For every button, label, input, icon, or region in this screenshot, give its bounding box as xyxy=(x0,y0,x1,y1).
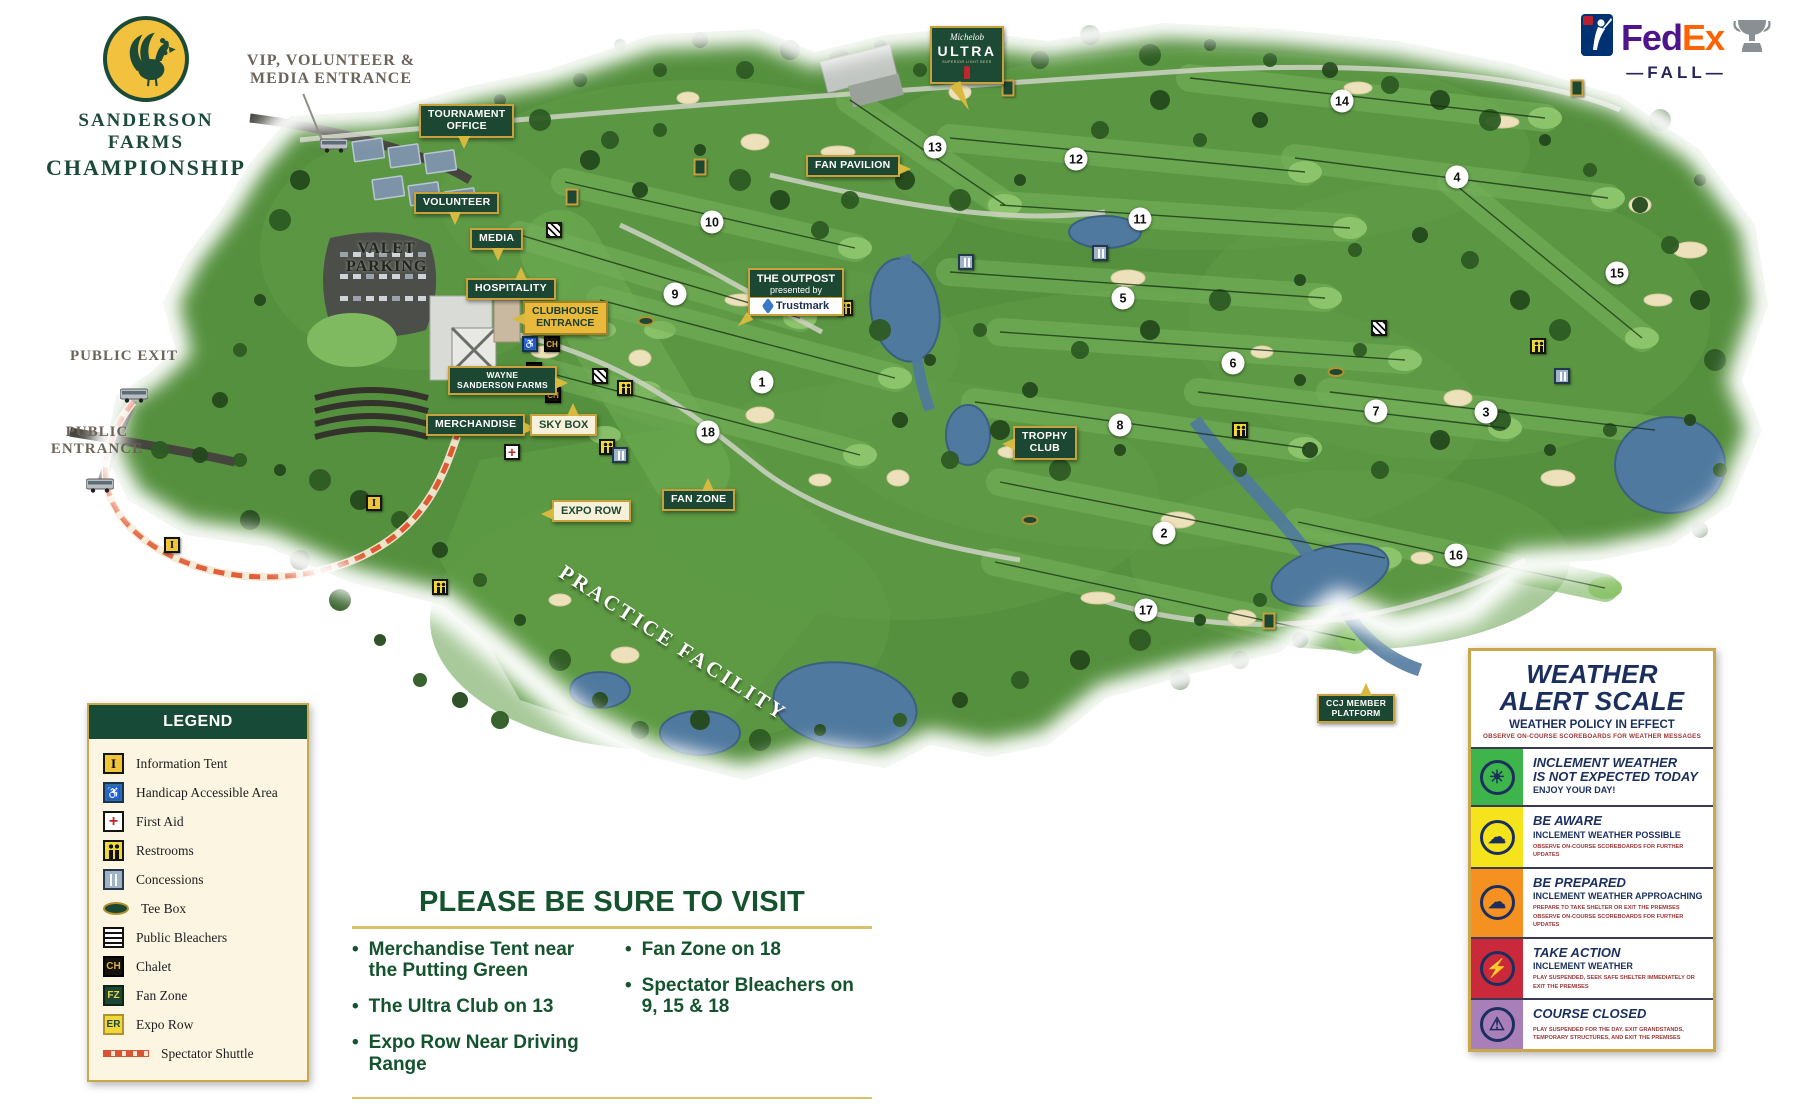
concessions-icon xyxy=(1554,368,1570,384)
legend-title: LEGEND xyxy=(89,705,307,739)
legend-label: Expo Row xyxy=(136,1017,193,1033)
fall-wordmark: —FALL— xyxy=(1626,63,1727,83)
legend-label: First Aid xyxy=(136,814,184,830)
hole-number-marker: 2 xyxy=(1153,522,1176,545)
event-title-line2: CHAMPIONSHIP xyxy=(46,155,246,181)
legend-label: Fan Zone xyxy=(136,988,187,1004)
legend-label: Concessions xyxy=(136,872,204,888)
map-location-label: WAYNE SANDERSON FARMS xyxy=(448,366,557,395)
bleachers-icon xyxy=(103,927,124,948)
restrooms-icon xyxy=(432,579,448,595)
restrooms-icon xyxy=(617,380,633,396)
map-location-label: TROPHY CLUB xyxy=(1013,426,1077,460)
teeoval-icon xyxy=(638,316,655,326)
handicap-icon: ♿ xyxy=(522,336,538,352)
visit-title: PLEASE BE SURE TO VISIT xyxy=(352,886,872,919)
weather-alert-panel: WEATHER ALERT SCALE WEATHER POLICY IN EF… xyxy=(1468,648,1716,1052)
public-exit-label: PUBLIC EXIT xyxy=(64,348,184,365)
chalet-icon: CH xyxy=(103,956,124,977)
map-location-label: FAN ZONE xyxy=(662,489,735,511)
restrooms-icon xyxy=(103,840,124,861)
storm-cloud-icon: ☁ xyxy=(1480,885,1515,920)
weather-level-subheading: INCLEMENT WEATHER APPROACHING xyxy=(1533,891,1705,901)
visit-item: •Expo Row Near Driving Range xyxy=(352,1032,599,1075)
hole-number-marker: 18 xyxy=(697,421,720,444)
weather-level-heading: TAKE ACTION xyxy=(1533,946,1705,960)
public-entrance-label: PUBLIC ENTRANCE xyxy=(42,424,152,457)
bullet-icon: • xyxy=(352,1032,359,1075)
teesign-icon xyxy=(694,159,707,176)
hole-number-marker: 4 xyxy=(1446,166,1469,189)
weather-level-color: ⚡ xyxy=(1471,939,1523,998)
shuttle-bus-icon xyxy=(320,138,348,158)
weather-level-row: ☀ INCLEMENT WEATHER IS NOT EXPECTED TODA… xyxy=(1471,747,1713,805)
legend-label: Spectator Shuttle xyxy=(161,1046,254,1062)
hole-number-marker: 5 xyxy=(1112,287,1135,310)
legend-row: CH Chalet xyxy=(103,952,297,981)
weather-level-fineprint: PLAY SUSPENDED FOR THE DAY. EXIT GRANDST… xyxy=(1533,1026,1705,1043)
visit-item: •Fan Zone on 18 xyxy=(625,939,872,960)
visit-list-right: •Fan Zone on 18 •Spectator Bleachers on … xyxy=(625,939,872,1090)
weather-level-row: ⚠ COURSE CLOSED PLAY SUSPENDED FOR THE D… xyxy=(1471,998,1713,1049)
weather-note: OBSERVE ON-COURSE SCOREBOARDS FOR WEATHE… xyxy=(1475,733,1709,740)
map-location-label: CLUBHOUSE ENTRANCE xyxy=(523,301,608,335)
weather-level-fineprint: PLAY SUSPENDED, SEEK SAFE SHELTER IMMEDI… xyxy=(1533,974,1705,991)
hole-number-marker: 7 xyxy=(1365,400,1388,423)
hole-number-marker: 10 xyxy=(701,211,724,234)
infotent-icon: I xyxy=(164,537,180,553)
legend-panel: LEGEND I Information Tent ♿ Handicap Acc… xyxy=(87,703,309,1082)
trustmark-wordmark: Trustmark xyxy=(776,300,829,312)
visit-item: •The Ultra Club on 13 xyxy=(352,996,599,1017)
restrooms-icon xyxy=(1232,422,1248,438)
course-closed-icon: ⚠ xyxy=(1480,1007,1515,1042)
hole-number-marker: 13 xyxy=(924,136,947,159)
bullet-icon: • xyxy=(352,939,359,982)
legend-items: I Information Tent ♿ Handicap Accessible… xyxy=(89,739,307,1080)
map-location-label: EXPO ROW xyxy=(552,500,631,522)
hole-number-marker: 11 xyxy=(1129,208,1152,231)
legend-label: Restrooms xyxy=(136,843,194,859)
bullet-icon: • xyxy=(625,939,632,960)
visit-list-left: •Merchandise Tent near the Putting Green… xyxy=(352,939,599,1090)
beer-bottle-icon xyxy=(964,66,970,79)
teesign-icon xyxy=(566,189,579,206)
teeoval-icon xyxy=(1328,367,1345,377)
rooster-logo-icon xyxy=(103,16,189,102)
map-location-label: SKY BOX xyxy=(530,414,597,436)
map-location-label: MEDIA xyxy=(470,228,523,250)
map-location-label: MERCHANDISE xyxy=(426,414,525,436)
weather-level-subheading: INCLEMENT WEATHER xyxy=(1533,961,1705,971)
sanderson-farms-logo: SANDERSON FARMS CHAMPIONSHIP xyxy=(46,12,246,181)
map-location-label: FAN PAVILION xyxy=(806,155,900,177)
firstaid-icon: + xyxy=(103,811,124,832)
weather-level-heading: COURSE CLOSED xyxy=(1533,1007,1705,1021)
chalet-icon: CH xyxy=(544,336,560,352)
sun-icon: ☀ xyxy=(1480,760,1515,795)
weather-level-heading: INCLEMENT WEATHER IS NOT EXPECTED TODAY xyxy=(1533,756,1705,783)
restrooms-icon xyxy=(1530,338,1546,354)
fedex-fall-lockup: FedEx —FALL— xyxy=(1581,14,1772,83)
legend-row: + First Aid xyxy=(103,807,297,836)
fanzone-icon: FZ xyxy=(103,985,124,1006)
concessions-icon xyxy=(958,254,974,270)
concessions-icon xyxy=(612,447,628,463)
michelob-script: Michelob xyxy=(934,32,1000,42)
legend-label: Handicap Accessible Area xyxy=(136,785,278,801)
weather-level-color: ☁ xyxy=(1471,869,1523,937)
visit-panel: PLEASE BE SURE TO VISIT •Merchandise Ten… xyxy=(352,886,872,1109)
legend-row: ER Expo Row xyxy=(103,1010,297,1039)
outpost-presented-by: presented by xyxy=(752,285,840,295)
bleachers-icon xyxy=(592,368,608,384)
map-location-label: VOLUNTEER xyxy=(414,192,499,214)
severe-weather-icon: ⚡ xyxy=(1480,951,1515,986)
bleachers-icon xyxy=(546,222,562,238)
hole-number-marker: 17 xyxy=(1135,599,1158,622)
outpost-title: THE OUTPOST xyxy=(752,273,840,285)
visit-item: •Spectator Bleachers on 9, 15 & 18 xyxy=(625,975,872,1018)
weather-level-heading: BE AWARE xyxy=(1533,814,1705,828)
ultra-tagline: SUPERIOR LIGHT BEER xyxy=(934,60,1000,64)
valet-parking-label: VALET PARKING xyxy=(346,240,427,277)
legend-row: Public Bleachers xyxy=(103,923,297,952)
bullet-icon: • xyxy=(352,996,359,1017)
weather-level-row: ☁ BE AWARE INCLEMENT WEATHER POSSIBLE OB… xyxy=(1471,805,1713,866)
legend-label: Tee Box xyxy=(141,901,186,917)
weather-level-color: ☁ xyxy=(1471,807,1523,866)
legend-row: Restrooms xyxy=(103,836,297,865)
shuttle-icon xyxy=(103,1050,149,1057)
exporow-icon: ER xyxy=(103,1014,124,1035)
bullet-icon: • xyxy=(625,975,632,1018)
hole-number-marker: 3 xyxy=(1475,401,1498,424)
legend-label: Chalet xyxy=(136,959,171,975)
hole-number-marker: 9 xyxy=(664,283,687,306)
visit-item: •Merchandise Tent near the Putting Green xyxy=(352,939,599,982)
map-location-label: CCJ MEMBER PLATFORM xyxy=(1317,694,1395,723)
tournament-map-page: SANDERSON FARMS CHAMPIONSHIP FedEx xyxy=(0,0,1800,1117)
legend-row: Tee Box xyxy=(103,894,297,923)
pga-tour-logo-icon xyxy=(1581,14,1613,61)
weather-level-color: ☀ xyxy=(1471,749,1523,805)
legend-row: ♿ Handicap Accessible Area xyxy=(103,778,297,807)
weather-subtitle: WEATHER POLICY IN EFFECT xyxy=(1475,719,1709,731)
legend-row: FZ Fan Zone xyxy=(103,981,297,1010)
infotent-icon: I xyxy=(366,495,382,511)
hole-number-marker: 6 xyxy=(1222,352,1245,375)
weather-level-subheading: ENJOY YOUR DAY! xyxy=(1533,785,1705,795)
infotent-icon: I xyxy=(103,753,124,774)
event-title-line1: SANDERSON FARMS xyxy=(46,110,246,154)
concessions-icon xyxy=(1092,245,1108,261)
teesign-icon xyxy=(1263,613,1276,630)
gold-divider xyxy=(352,1097,872,1100)
hole-number-marker: 14 xyxy=(1331,90,1354,113)
weather-level-subheading: INCLEMENT WEATHER POSSIBLE xyxy=(1533,830,1705,840)
legend-row: Spectator Shuttle xyxy=(103,1039,297,1068)
bleachers-icon xyxy=(1371,320,1387,336)
shuttle-bus-icon xyxy=(120,388,148,408)
weather-level-fineprint: PREPARE TO TAKE SHELTER OR EXIT THE PREM… xyxy=(1533,904,1705,929)
map-location-label: TOURNAMENT OFFICE xyxy=(419,104,514,138)
legend-row: I Information Tent xyxy=(103,749,297,778)
hole-number-marker: 1 xyxy=(751,371,774,394)
firstaid-icon: + xyxy=(504,444,520,460)
rain-cloud-icon: ☁ xyxy=(1480,820,1515,855)
legend-label: Information Tent xyxy=(136,756,227,772)
weather-title: WEATHER ALERT SCALE xyxy=(1475,661,1709,714)
weather-level-heading: BE PREPARED xyxy=(1533,876,1705,890)
gold-divider xyxy=(352,926,872,929)
vip-volunteer-media-entrance-label: VIP, VOLUNTEER & MEDIA ENTRANCE xyxy=(246,52,416,87)
weather-level-fineprint: OBSERVE ON-COURSE SCOREBOARDS FOR FURTHE… xyxy=(1533,843,1705,860)
fedexcup-trophy-icon xyxy=(1732,17,1772,58)
map-location-label: HOSPITALITY xyxy=(466,278,556,300)
legend-row: Concessions xyxy=(103,865,297,894)
trustmark-logo-icon xyxy=(762,298,774,314)
concessions-icon xyxy=(103,869,124,890)
hole-number-marker: 16 xyxy=(1445,544,1468,567)
handicap-icon: ♿ xyxy=(103,782,124,803)
weather-level-color: ⚠ xyxy=(1471,1000,1523,1049)
hole-number-marker: 15 xyxy=(1606,262,1629,285)
ultra-wordmark: ULTRA xyxy=(934,43,1000,59)
weather-levels: ☀ INCLEMENT WEATHER IS NOT EXPECTED TODA… xyxy=(1471,747,1713,1049)
weather-level-row: ⚡ TAKE ACTION INCLEMENT WEATHER PLAY SUS… xyxy=(1471,937,1713,998)
hole-number-marker: 8 xyxy=(1109,414,1132,437)
fedex-wordmark: FedEx xyxy=(1621,20,1724,56)
teeoval-icon xyxy=(1022,515,1039,525)
shuttle-bus-icon xyxy=(86,478,114,498)
teebox-icon xyxy=(103,902,129,915)
legend-label: Public Bleachers xyxy=(136,930,227,946)
michelob-ultra-sign: Michelob ULTRA SUPERIOR LIGHT BEER xyxy=(930,26,1004,84)
hole-number-marker: 12 xyxy=(1065,148,1088,171)
weather-level-row: ☁ BE PREPARED INCLEMENT WEATHER APPROACH… xyxy=(1471,867,1713,937)
outpost-sign: THE OUTPOST presented by Trustmark xyxy=(748,268,844,316)
